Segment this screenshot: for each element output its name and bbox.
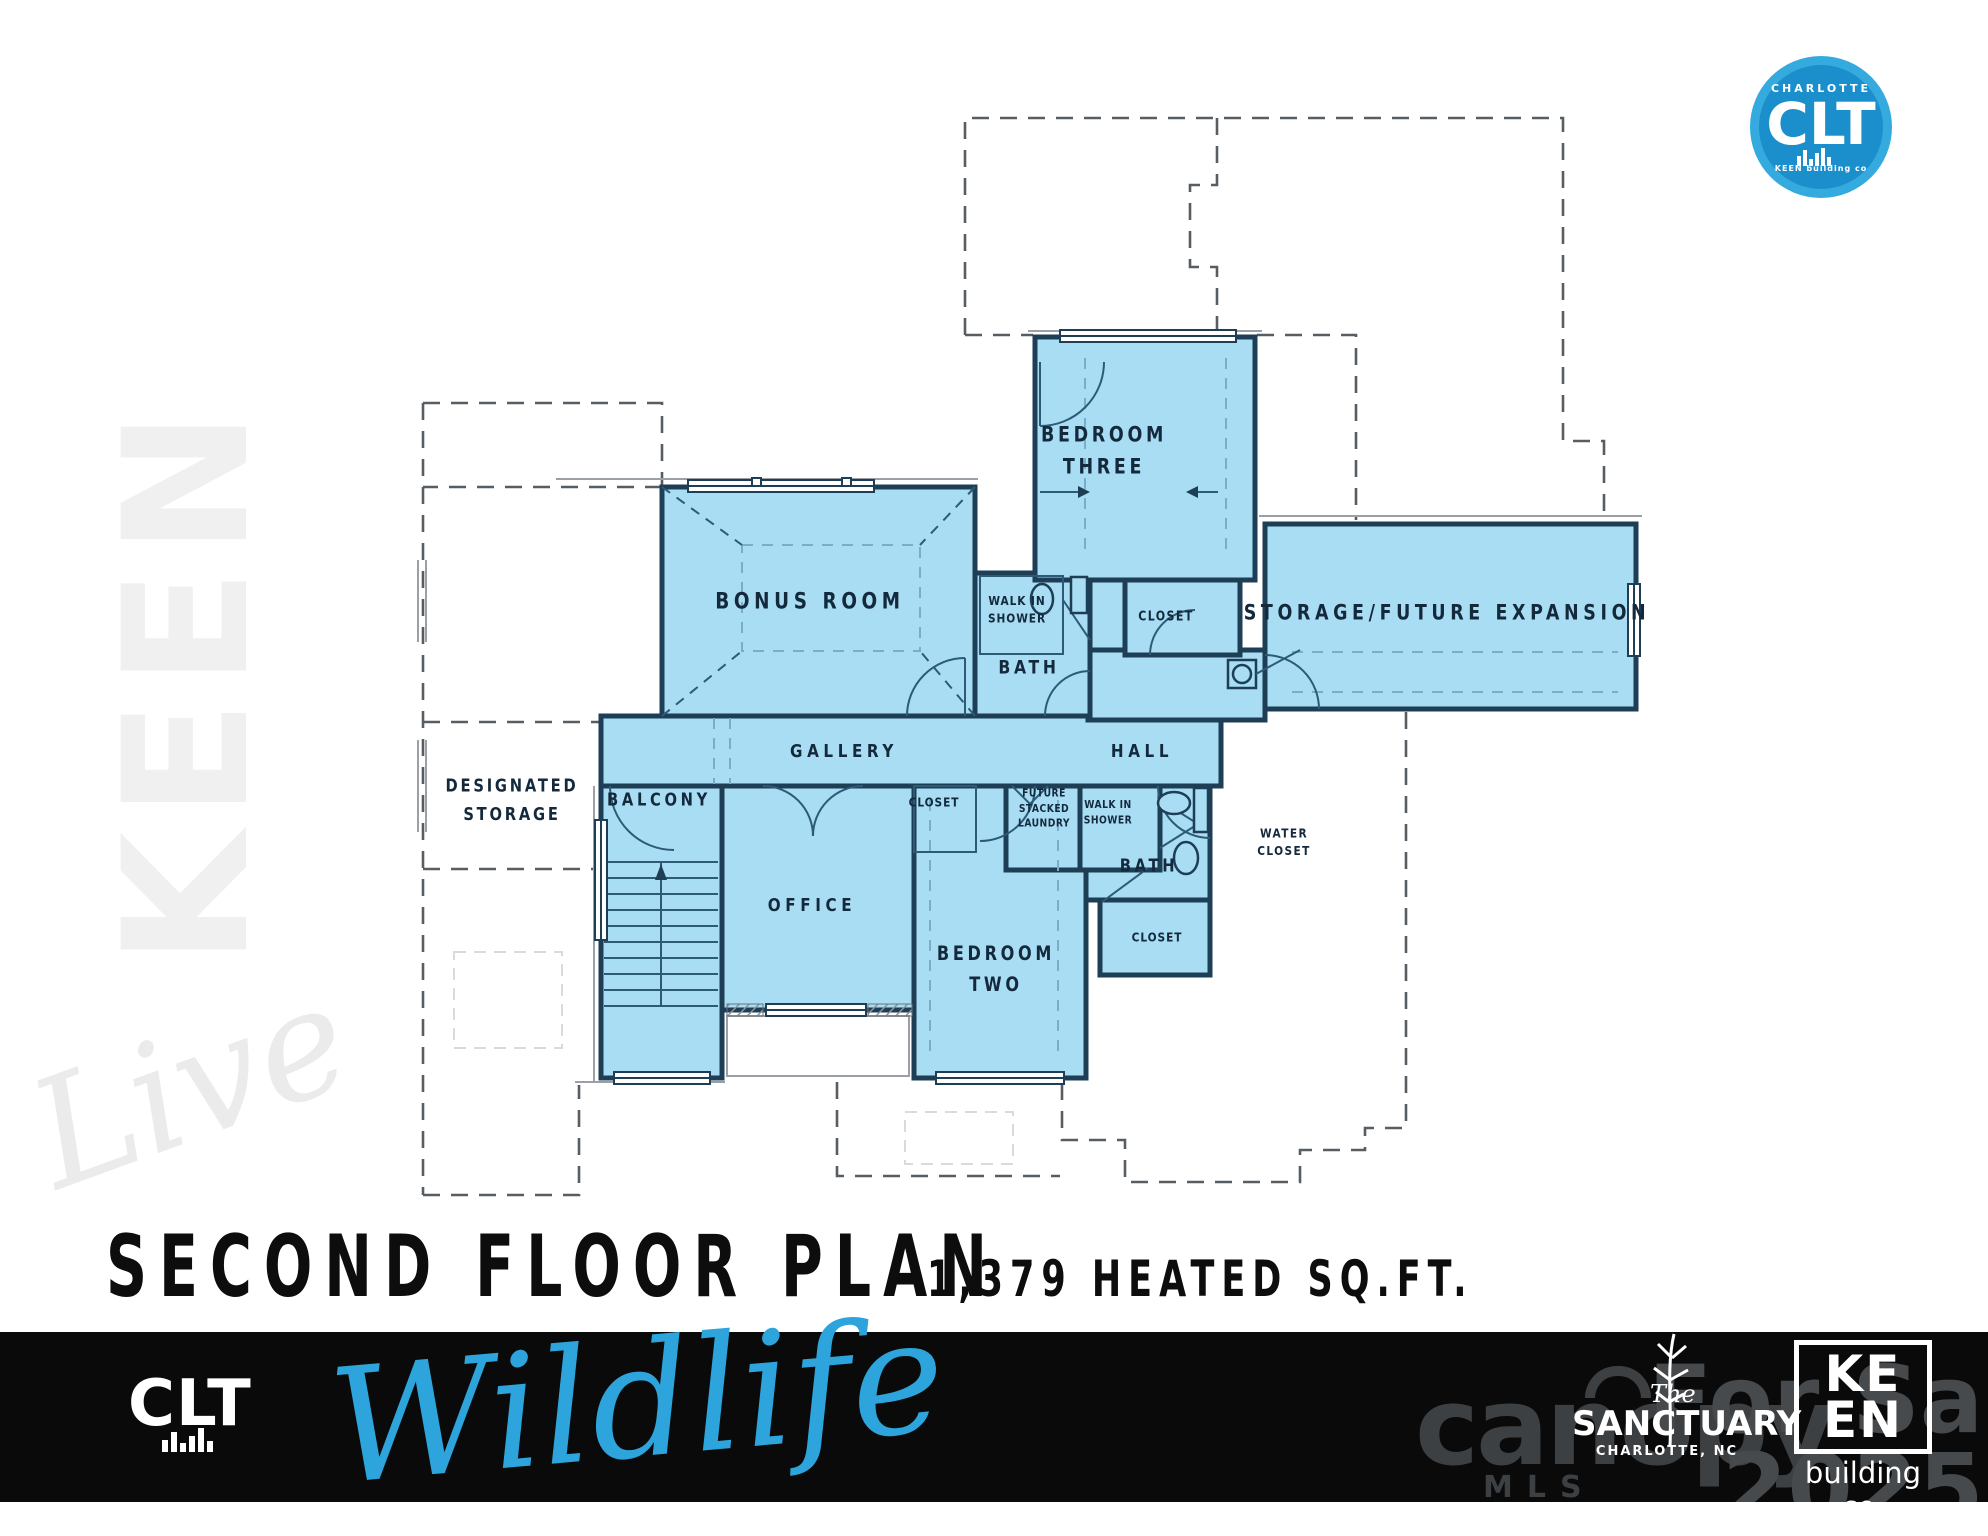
badge-sub-label: KEEN building co — [1750, 164, 1892, 173]
badge-brand-label: CLT — [1750, 94, 1892, 155]
keen-box-logo: KE EN — [1794, 1340, 1932, 1454]
room-gallery-hall — [601, 716, 1221, 786]
canopy-mls-watermark: MLS — [1483, 1470, 1596, 1505]
footer-skyline-icon — [162, 1428, 213, 1452]
sanctuary-city: CHARLOTTE, NC — [1572, 1444, 1762, 1459]
floor-plan-sheet: KEEN Live CHARLOTTE CLT KEEN building co — [0, 0, 1988, 1536]
footer-bar: CLT Wildlife canopy MLS For Sale 2025 Th… — [0, 1332, 1988, 1502]
rooms — [601, 337, 1636, 1078]
keen-box-text: KE EN — [1823, 1351, 1903, 1443]
room-closet-bed3 — [1125, 580, 1240, 655]
clt-circle-logo: CHARLOTTE CLT KEEN building co — [1750, 56, 1892, 198]
room-storage-expansion — [1265, 524, 1636, 709]
room-laundry — [1006, 786, 1080, 870]
footer-white-strip — [0, 1502, 1988, 1536]
footer-clt-logo: CLT — [128, 1372, 252, 1436]
room-bedroom-three — [1035, 337, 1255, 580]
sheet-sqft: 1,379 HEATED SQ.FT. — [927, 1252, 1474, 1309]
room-shower-lower — [1080, 786, 1160, 870]
room-closet-bed2 — [1100, 900, 1210, 975]
sanctuary-name: SANCTUARY — [1572, 1404, 1762, 1444]
room-office — [722, 786, 914, 1010]
